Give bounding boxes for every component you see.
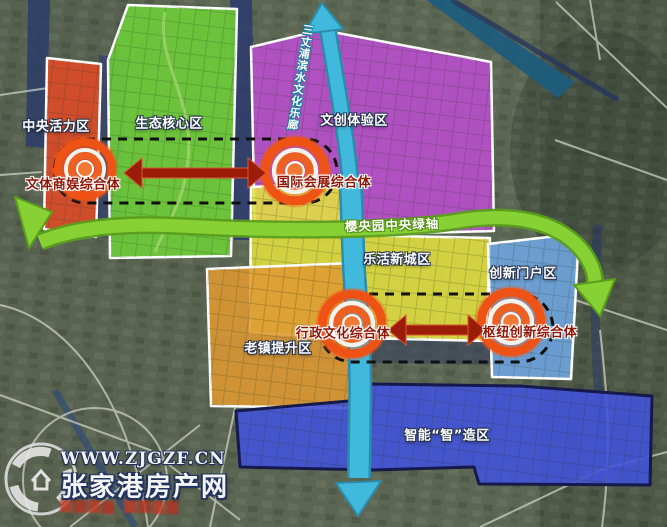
node-convention [259, 135, 332, 208]
node-hub-innovation [475, 286, 548, 359]
node-sports-commerce [52, 136, 118, 202]
planning-map: 中央活力区 生态核心区 文创体验区 乐活新城区 创新门户区 老镇提升区 智能“智… [0, 0, 667, 527]
map-canvas [0, 0, 667, 527]
node-admin-culture [316, 288, 389, 361]
